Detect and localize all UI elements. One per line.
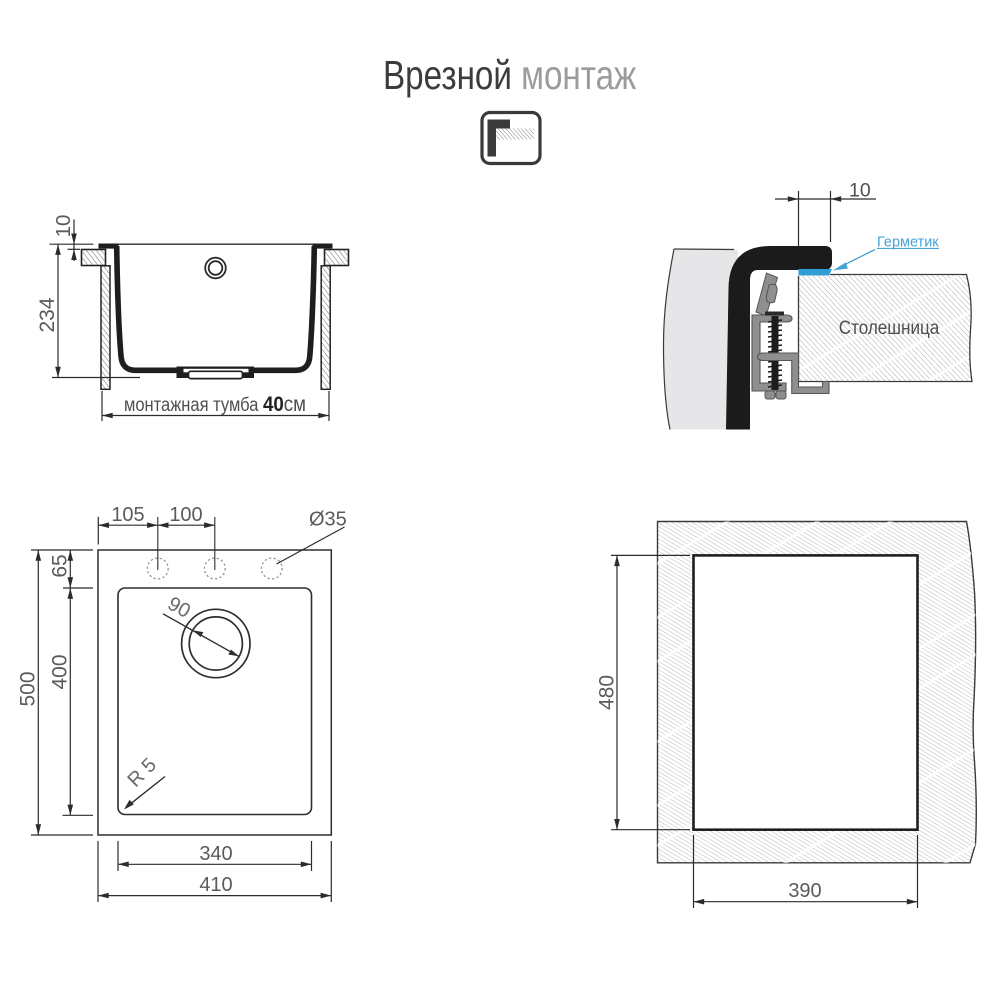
svg-text:500: 500 [17, 671, 40, 706]
svg-text:105: 105 [111, 504, 144, 526]
svg-text:400: 400 [49, 654, 72, 689]
svg-text:монтажная тумба 40см: монтажная тумба 40см [124, 393, 306, 416]
svg-text:10: 10 [52, 215, 75, 238]
svg-text:65: 65 [49, 554, 72, 577]
svg-text:480: 480 [596, 675, 619, 710]
svg-text:Ø35: Ø35 [309, 509, 347, 531]
svg-text:390: 390 [788, 880, 821, 902]
svg-text:Столешница: Столешница [839, 317, 940, 338]
svg-text:234: 234 [36, 297, 59, 332]
svg-text:10: 10 [849, 180, 871, 202]
svg-text:410: 410 [199, 874, 232, 896]
svg-text:340: 340 [199, 843, 232, 865]
svg-text:Врезной монтаж: Врезной монтаж [383, 52, 636, 98]
svg-text:100: 100 [169, 504, 202, 526]
